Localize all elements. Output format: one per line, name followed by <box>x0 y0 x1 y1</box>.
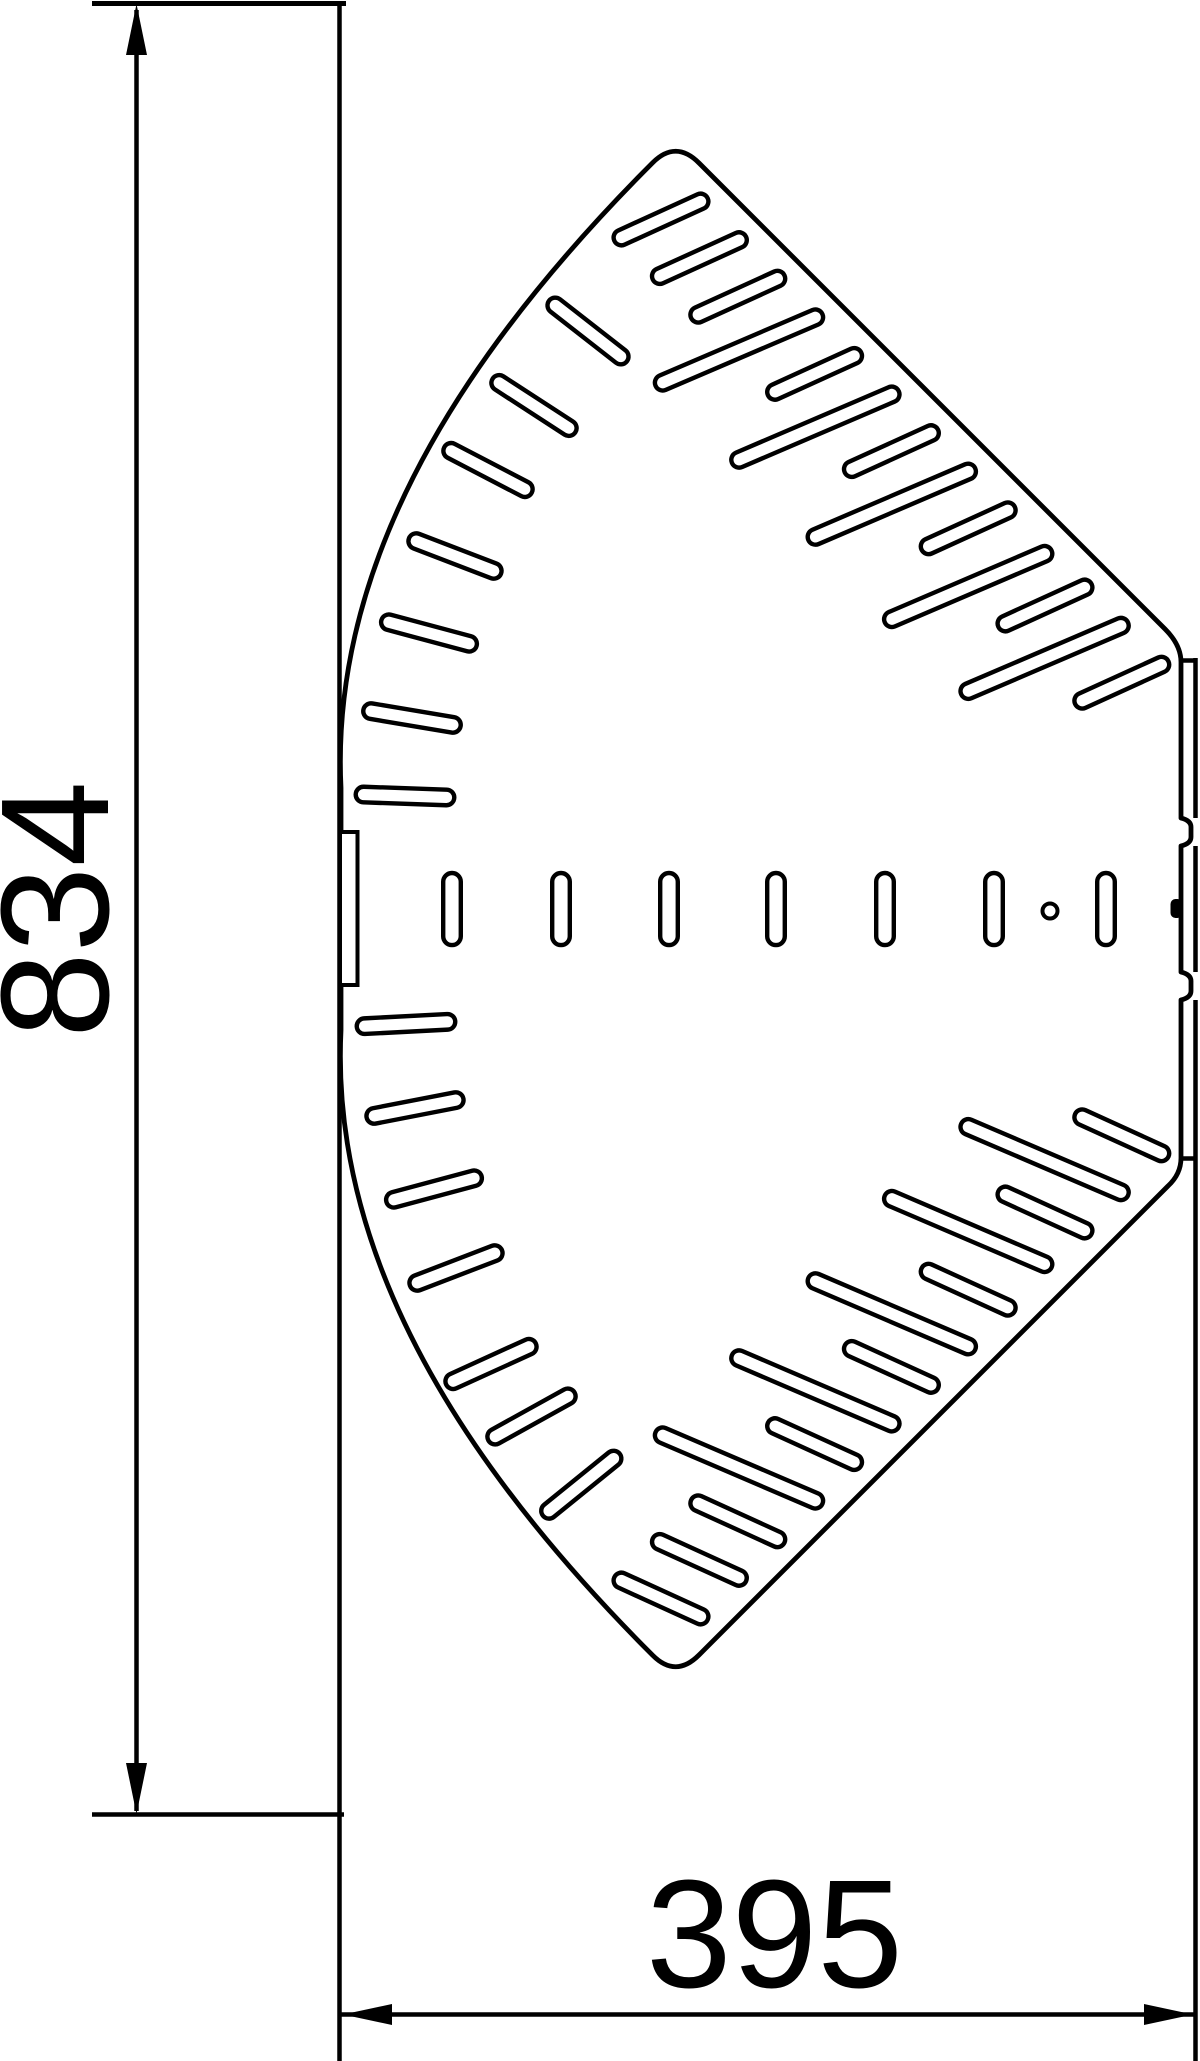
svg-text:834: 834 <box>0 781 141 1038</box>
svg-text:395: 395 <box>646 1848 903 2020</box>
